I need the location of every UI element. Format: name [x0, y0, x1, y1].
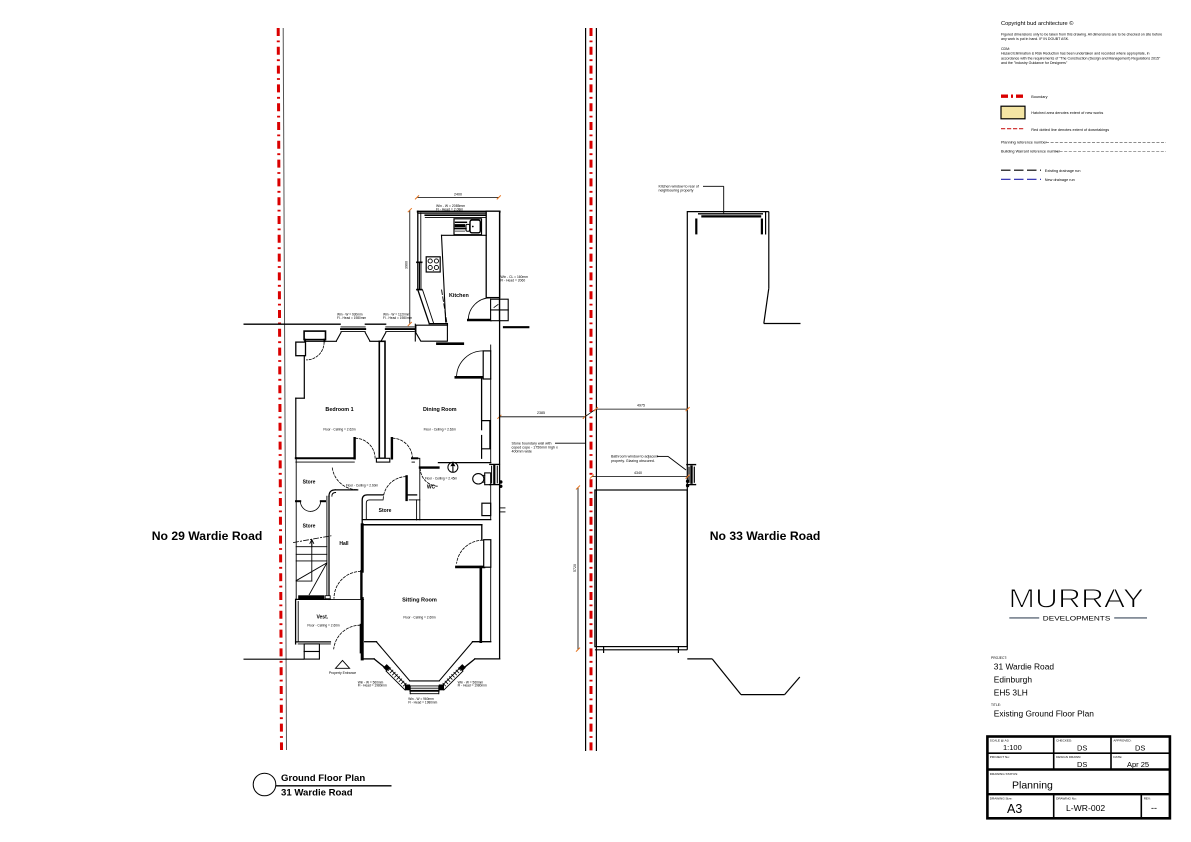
svg-text:L-WR-002: L-WR-002: [1066, 803, 1105, 813]
svg-text:DESIGN DRAWN:: DESIGN DRAWN:: [1056, 755, 1081, 759]
svg-text:4340: 4340: [634, 471, 642, 475]
svg-text:EH5 3LH: EH5 3LH: [994, 687, 1028, 697]
svg-text:Hazard Elimination & Risk Redu: Hazard Elimination & Risk Reduction has …: [1001, 52, 1149, 56]
svg-text:Sitting Room: Sitting Room: [402, 598, 437, 604]
svg-text:property. Glazing obscured.: property. Glazing obscured.: [611, 459, 655, 463]
svg-text:CDM:: CDM:: [1001, 47, 1010, 51]
svg-text:Bedroom 1: Bedroom 1: [325, 407, 353, 413]
svg-text:Fl - Head = 1980mm: Fl - Head = 1980mm: [358, 684, 387, 688]
svg-text:Vest.: Vest.: [316, 614, 328, 620]
svg-text:Figured dimensions only to be: Figured dimensions only to be taken from…: [1001, 33, 1162, 37]
svg-text:neighbouring property: neighbouring property: [659, 189, 694, 193]
svg-text:DRAWING STATUS:: DRAWING STATUS:: [990, 772, 1018, 776]
svg-text:PROJECT:: PROJECT:: [991, 656, 1007, 660]
svg-text:Kitchen: Kitchen: [449, 293, 469, 299]
svg-text:DATE:: DATE:: [1113, 755, 1122, 759]
svg-text:Fl - Head = 2.08m: Fl - Head = 2.08m: [436, 208, 463, 212]
svg-text:and the "Industry Guidance for: and the "Industry Guidance for Designers…: [1001, 61, 1068, 65]
svg-text:MURRAY: MURRAY: [1009, 584, 1145, 614]
svg-text:No 33 Wardie Road: No 33 Wardie Road: [710, 529, 821, 543]
svg-text:4975: 4975: [637, 403, 645, 407]
svg-text:DRAWING No:: DRAWING No:: [1056, 796, 1077, 800]
svg-text:Planning reference number -: Planning reference number -: [1001, 141, 1050, 145]
svg-text:Floor - Ceiling = 2.60m: Floor - Ceiling = 2.60m: [403, 616, 436, 620]
svg-text:No 29 Wardie Road: No 29 Wardie Road: [152, 529, 263, 543]
svg-text:DS: DS: [1077, 744, 1087, 753]
svg-text:A3: A3: [1007, 802, 1022, 816]
svg-text:Store: Store: [303, 524, 316, 530]
svg-text:Fl - Head = 2060: Fl - Head = 2060: [501, 279, 526, 283]
svg-text:Hall: Hall: [339, 541, 349, 547]
svg-text:CHECKED:: CHECKED:: [1056, 739, 1072, 743]
svg-text:Floor - Ceiling = 2.60m: Floor - Ceiling = 2.60m: [307, 623, 340, 627]
svg-text:--: --: [1151, 803, 1157, 813]
svg-text:31 Wardie Road: 31 Wardie Road: [994, 662, 1055, 672]
svg-text:Existing Ground Floor Plan: Existing Ground Floor Plan: [994, 708, 1094, 718]
svg-text:APPROVED:: APPROVED:: [1113, 739, 1131, 743]
svg-text:New drainage run: New drainage run: [1045, 178, 1075, 182]
svg-text:2400: 2400: [454, 193, 462, 197]
svg-text:Fl - Head = 1980mm: Fl - Head = 1980mm: [383, 316, 412, 320]
svg-text:DRAWING Size:: DRAWING Size:: [990, 796, 1013, 800]
svg-text:DS: DS: [1135, 744, 1145, 753]
svg-text:Copyright bud architecture ©: Copyright bud architecture ©: [1001, 20, 1074, 27]
svg-text:2385: 2385: [537, 411, 545, 415]
svg-text:Apr 25: Apr 25: [1127, 760, 1149, 769]
svg-text:Planning: Planning: [1012, 779, 1053, 791]
svg-text:accordance with the requiremen: accordance with the requirements of "The…: [1001, 56, 1161, 60]
svg-text:31 Wardie Road: 31 Wardie Road: [281, 788, 353, 799]
svg-text:Floor - Ceiling = 2.60m: Floor - Ceiling = 2.60m: [346, 484, 379, 488]
svg-text:Fl - Head = 1980mm: Fl - Head = 1980mm: [408, 701, 437, 705]
svg-text:Floor - Ceiling = 2.62m: Floor - Ceiling = 2.62m: [424, 428, 457, 432]
svg-text:Property Entrance: Property Entrance: [329, 671, 356, 675]
svg-text:Existing drainage run: Existing drainage run: [1045, 169, 1081, 173]
svg-text:3960: 3960: [405, 261, 409, 269]
svg-text:Boundary: Boundary: [1031, 95, 1047, 99]
svg-text:Store: Store: [303, 479, 316, 485]
svg-text:Red dotted line denotes extent: Red dotted line denotes extent of downta…: [1031, 128, 1109, 132]
svg-text:Hatched area denotes extent of: Hatched area denotes extent of new works: [1031, 111, 1103, 115]
svg-text:TITLE:: TITLE:: [991, 703, 1001, 707]
svg-text:5720: 5720: [573, 564, 577, 572]
svg-text:Edinburgh: Edinburgh: [994, 675, 1033, 685]
svg-text:DEVELOPMENTS: DEVELOPMENTS: [1043, 616, 1111, 623]
svg-text:Ground Floor Plan: Ground Floor Plan: [281, 773, 365, 784]
svg-text:Building Warrant reference num: Building Warrant reference number: [1001, 150, 1061, 154]
svg-text:Floor - Ceiling = 2.62m: Floor - Ceiling = 2.62m: [323, 428, 356, 432]
svg-text:Dining Room: Dining Room: [423, 407, 457, 413]
svg-text:PROJECT No:: PROJECT No:: [990, 755, 1010, 759]
svg-text:DS: DS: [1077, 760, 1087, 769]
svg-text:Floor - Ceiling = 2.45m: Floor - Ceiling = 2.45m: [425, 476, 458, 480]
svg-text:400mm wide: 400mm wide: [512, 450, 532, 454]
svg-text:Fl - Head = 1980mm: Fl - Head = 1980mm: [337, 316, 366, 320]
svg-text:SCALE @ A3:: SCALE @ A3:: [990, 739, 1010, 743]
svg-text:Fl - Head = 1980mm: Fl - Head = 1980mm: [458, 684, 487, 688]
svg-text:REV:: REV:: [1144, 796, 1151, 800]
svg-text:WC: WC: [427, 484, 436, 490]
svg-text:1:100: 1:100: [1003, 743, 1022, 752]
svg-text:Store: Store: [379, 508, 392, 514]
svg-text:any work is put in hand. IF IN: any work is put in hand. IF IN DOUBT ASK…: [1001, 37, 1069, 41]
